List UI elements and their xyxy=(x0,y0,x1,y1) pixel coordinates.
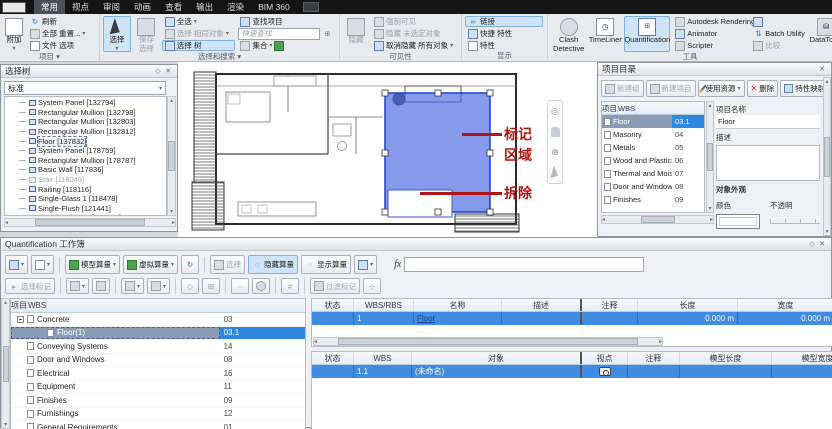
select-icon xyxy=(214,260,224,270)
viewpoint-cell xyxy=(582,365,628,378)
tree-branch xyxy=(19,141,26,142)
takeoff-header-cell[interactable]: 注释 xyxy=(582,299,638,311)
bucket-markup-button[interactable]: ◇ xyxy=(181,278,199,294)
item-name-link[interactable]: Floor xyxy=(414,312,502,325)
select-all-button[interactable]: 全选▾ xyxy=(162,16,236,27)
grid-markup-button[interactable]: ⊞ xyxy=(202,278,220,294)
count-markup-button[interactable]: # xyxy=(281,278,299,294)
group-label-display[interactable]: 显示 xyxy=(462,51,547,61)
append-icon xyxy=(5,18,23,36)
workbook-tree-row[interactable]: Furnishings 12 xyxy=(11,408,305,422)
workbook-tree-row[interactable]: Conveying Systems 14 xyxy=(11,340,305,354)
tree-branch xyxy=(19,131,26,132)
save-selection-button[interactable]: 保存 选择 xyxy=(133,16,160,52)
selection-tree-list: System Panel [132794] Rectangular Mullio… xyxy=(4,96,167,216)
markup-tool-button[interactable] xyxy=(92,278,110,294)
formula-input[interactable] xyxy=(404,257,644,272)
tree-branch xyxy=(19,208,26,209)
application-menu-button[interactable] xyxy=(2,2,26,13)
ribbon-tab[interactable]: 常用 xyxy=(34,0,65,14)
tree-vertical-scrollbar[interactable]: ▴ ▾ xyxy=(167,96,176,216)
takeoff-visibility-button[interactable]: ▾ xyxy=(5,255,28,274)
workbook-tree-header: 项目WBS xyxy=(11,299,305,313)
group-label-select-search[interactable]: 选择和搜索 ▾ xyxy=(100,52,339,61)
show-takeoff-button[interactable]: ◌显示算量 xyxy=(301,255,351,274)
workbook-tree-row[interactable]: Electrical 16 xyxy=(11,367,305,381)
quantification-workbook-panel: Quantification 工作簿 ◇ ✕ ▾ ▾ 模型算量▾ 虚拟算量▾ ↻… xyxy=(0,237,832,428)
tree-branch xyxy=(19,121,26,122)
description-label: 描述 xyxy=(716,132,820,143)
objects-header-cell[interactable]: 状态 xyxy=(312,352,354,364)
catalog-form: 项目名称 Floor 描述 对象外观 颜色 不透明 xyxy=(716,101,820,229)
ribbon-group-project: 附加▾ ↻刷新 全部 重置...▾ 文件 选项 项目 ▾ xyxy=(0,14,100,61)
objects-header-cell[interactable]: 视点 xyxy=(582,352,628,364)
select-all-icon xyxy=(165,17,175,27)
cube-icon xyxy=(29,100,36,106)
ribbon-tab[interactable]: 输出 xyxy=(189,0,220,14)
tree-branch xyxy=(19,179,26,180)
page-icon xyxy=(604,183,611,191)
select-same-icon xyxy=(165,29,175,39)
catalog-row[interactable]: Masonry 04 xyxy=(602,128,704,141)
page-icon xyxy=(27,369,34,377)
page-icon xyxy=(27,410,34,418)
markup-arrow-icon: ▸ xyxy=(9,281,19,291)
annotation-leader-demolish xyxy=(420,192,502,195)
tree-item[interactable]: Double-Glass 1 [122179] xyxy=(5,213,166,216)
tree-item[interactable]: Railing [118116] xyxy=(5,184,166,194)
new-group-icon xyxy=(605,84,615,94)
properties-icon xyxy=(468,41,478,51)
tree-item[interactable]: Rectangular Mullion [132803] xyxy=(5,117,166,127)
takeoff-header-cell[interactable]: 长度 xyxy=(638,299,738,311)
tree-branch xyxy=(19,160,26,161)
color-swatch[interactable] xyxy=(716,214,760,229)
cube-icon xyxy=(29,177,36,183)
select-arrow-icon[interactable] xyxy=(550,167,561,178)
quick-properties-icon xyxy=(468,29,478,39)
camera-icon[interactable] xyxy=(599,367,611,376)
compare-button[interactable]: 比较 xyxy=(750,40,806,51)
workbook-tree-rows: Concrete 03 Floor(1) 03.1 Conveying Syst… xyxy=(11,313,305,429)
filter-markup-icon xyxy=(314,281,324,291)
page-icon xyxy=(47,329,54,337)
scripter-icon xyxy=(675,41,685,51)
cube-icon xyxy=(29,196,36,202)
takeoff-items-header: 状态WBS/RBS名称描述注释长度宽度 xyxy=(312,299,832,312)
tree-branch xyxy=(19,102,26,103)
page-icon xyxy=(604,144,611,152)
annotation-demolish: 拆除 xyxy=(504,185,532,201)
area-markup-button[interactable]: ▾ xyxy=(121,278,144,294)
hide-button[interactable]: 隐藏 xyxy=(343,16,369,52)
objects-header-cell[interactable]: WBS xyxy=(354,352,412,364)
bucket-icon: ◇ xyxy=(185,281,195,291)
number-icon: # xyxy=(285,281,295,291)
tree-header-cell[interactable]: 项目 xyxy=(11,299,28,312)
refresh-icon: ↻ xyxy=(185,260,195,270)
expander-icon[interactable] xyxy=(17,316,24,323)
tree-branch xyxy=(19,112,26,113)
navigation-toolbar: ◎ ⊕ xyxy=(547,100,563,184)
links-button[interactable]: ∞链接 xyxy=(465,16,543,27)
pan-icon[interactable] xyxy=(550,126,561,137)
takeoff-header-cell[interactable]: 宽度 xyxy=(738,299,832,311)
tree-item[interactable]: Stair [118049] xyxy=(5,175,166,185)
length-cell: 0.000 m xyxy=(638,312,738,325)
tree-horizontal-scrollbar[interactable]: ◂ ▸ xyxy=(4,218,176,227)
ribbon-group-select-search: 选择▾ 保存 选择 全选▾ 选择 相同对象▾ 选择 树 查找项目 ⊕ 集合▾ 选… xyxy=(100,14,340,61)
catalog-header-cell[interactable]: 项目 xyxy=(602,102,618,114)
crosshair-icon: ⊹ xyxy=(367,281,377,291)
unhide-all-button[interactable]: 取消隐藏 所有对象▾ xyxy=(371,40,459,51)
page-icon xyxy=(604,196,611,204)
animator-button[interactable]: Animator xyxy=(672,28,748,39)
save-selection-icon xyxy=(137,18,155,36)
item-catalog-title: 项目目录 ✕ xyxy=(598,63,831,76)
selection-tree-icon xyxy=(165,41,175,51)
dock-icon[interactable]: ◇ xyxy=(807,239,817,249)
tree-item[interactable]: Single-Flush [121441] xyxy=(5,204,166,214)
tree-item[interactable]: Rectangular Mullion [178787] xyxy=(5,156,166,166)
model-width-cell xyxy=(772,365,832,378)
delete-icon: ✕ xyxy=(751,84,758,93)
show-takeoff-icon: ◌ xyxy=(305,260,315,270)
close-icon[interactable]: ✕ xyxy=(817,64,827,74)
page-icon xyxy=(604,131,611,139)
property-mapping-button[interactable]: 特性映射 xyxy=(780,80,829,97)
tree-item[interactable]: Floor [137832] xyxy=(5,136,166,146)
filter-markup-button[interactable]: 过滤标记 xyxy=(310,278,360,294)
datatools-button[interactable]: ⛁ DataTools xyxy=(808,16,832,52)
tree-item[interactable]: Basic Wall [117836] xyxy=(5,165,166,175)
description-cell xyxy=(502,312,582,325)
append-button[interactable]: 附加▾ xyxy=(3,16,25,52)
virtual-takeoff-button[interactable]: 虚拟算量▾ xyxy=(123,255,178,274)
rect-markup-icon xyxy=(151,281,161,291)
takeoff-header-cell[interactable]: 状态 xyxy=(312,299,354,311)
find-items-icon xyxy=(240,17,250,27)
formula-label: fx xyxy=(394,259,401,270)
scene-view[interactable] xyxy=(178,62,597,237)
wbs-cell: 1 xyxy=(354,312,414,325)
objects-header-cell[interactable]: 模型长度 xyxy=(680,352,772,364)
display-mode-icon xyxy=(358,260,368,270)
takeoff-header-cell[interactable]: 描述 xyxy=(502,299,582,311)
file-options-button[interactable]: 文件 选项 xyxy=(27,40,88,51)
annotation-mark-region-line2: 区域 xyxy=(504,147,532,163)
catalog-row[interactable]: Floor 03.1 xyxy=(602,115,704,128)
page-icon xyxy=(604,118,611,126)
ribbon-tab[interactable]: 查看 xyxy=(158,0,189,14)
ribbon-tab[interactable]: 视点 xyxy=(65,0,96,14)
close-icon[interactable]: ✕ xyxy=(817,239,827,249)
find-items-button[interactable]: 查找项目 xyxy=(237,16,337,27)
chevron-down-icon: ▾ xyxy=(159,85,162,92)
linear-markup-button[interactable]: ▾ xyxy=(66,278,89,294)
selection-tree-button[interactable]: 选择 树 xyxy=(162,40,236,51)
rect-markup-button[interactable]: ▾ xyxy=(147,278,170,294)
property-mapping-icon xyxy=(784,84,793,93)
refresh-button[interactable]: ↻刷新 xyxy=(27,16,88,27)
group-label-visibility[interactable]: 可见性 xyxy=(340,52,461,61)
use-resource-button[interactable]: 使用资源▾ xyxy=(698,80,745,97)
page-icon xyxy=(27,342,34,350)
tree-header-cell[interactable]: WBS xyxy=(28,299,47,312)
ribbon-group-tools: Clash Detective ◷ TimeLiner ⊞ Quantifica… xyxy=(548,14,832,61)
page-icon xyxy=(27,383,34,391)
select-button[interactable]: 选择▾ xyxy=(103,16,131,52)
selection-tree-panel: 选择树 ◇ ✕ 标准▾ System Panel [132794] Rectan… xyxy=(0,64,178,232)
page-icon xyxy=(604,170,611,178)
scroll-up-icon[interactable]: ▴ xyxy=(170,97,173,104)
line-markup-icon xyxy=(70,281,80,291)
page-icon xyxy=(27,315,34,323)
color-label: 颜色 xyxy=(716,200,760,211)
catalog-table: 项目WBS Floor 03.1 Masonry 04 Metals 05 Wo… xyxy=(601,101,705,213)
compare-icon xyxy=(753,41,763,51)
tree-item[interactable]: Rectangular Mullion [132812] xyxy=(5,127,166,137)
sets-button[interactable]: 集合▾ xyxy=(237,40,337,51)
workbook-tree-row[interactable]: Finishes 09 xyxy=(11,394,305,408)
appearance-label: 对象外观 xyxy=(716,184,820,195)
item-catalog-panel: 项目目录 ✕ 新建组 新建项目 使用资源▾ ✕删除 特性映射 项目WBS Flo… xyxy=(597,62,832,237)
catalog-row[interactable]: Wood and Plastics 06 xyxy=(602,154,704,167)
takeoff-object-row[interactable]: 1.1 (未命名) xyxy=(312,365,832,378)
cube-icon xyxy=(29,109,36,115)
sets-icon xyxy=(240,41,250,51)
group-label-project[interactable]: 项目 ▾ xyxy=(0,52,99,61)
require-button[interactable]: 强制可见 xyxy=(371,16,459,27)
tree-branch xyxy=(19,198,26,199)
batch-utility-button[interactable]: ⇅Batch Utility xyxy=(750,28,806,39)
select-same-button[interactable]: 选择 相同对象▾ xyxy=(162,28,236,39)
reset-all-icon xyxy=(30,29,40,39)
tree-mode-select[interactable]: 标准▾ xyxy=(4,81,166,95)
ribbon-tab[interactable]: 审阅 xyxy=(96,0,127,14)
datatools-icon: ⛁ xyxy=(817,18,832,36)
pin-icon[interactable]: ◇ xyxy=(153,66,163,76)
takeoff-item-row[interactable]: 1 Floor 0.000 m 0.000 m xyxy=(312,312,832,325)
catalog-header-cell[interactable]: WBS xyxy=(618,102,636,114)
quick-access-icon[interactable] xyxy=(303,2,319,12)
hide-icon xyxy=(347,18,365,36)
takeoff-objects-table: 状态WBS对象视点注释模型长度模型宽度模型厚度 1.1 (未命名) xyxy=(311,351,832,429)
analyze-button[interactable]: ⊹ xyxy=(363,278,381,294)
page-icon xyxy=(27,356,34,364)
tree-branch xyxy=(19,150,26,151)
group-label-tools[interactable]: 工具 xyxy=(548,52,832,61)
annotation-leader-mark xyxy=(462,133,502,136)
catalog-row[interactable]: Door and Windows 08 xyxy=(602,180,704,193)
model-takeoff-button[interactable]: 模型算量▾ xyxy=(65,255,120,274)
catalog-row[interactable]: Finishes 09 xyxy=(602,193,704,206)
grid-icon: ⊞ xyxy=(206,281,216,291)
title-bar: 常用视点审阅动画查看输出渲染BIM 360 xyxy=(0,0,832,14)
require-icon xyxy=(374,17,384,27)
panel-vertical-scrollbar[interactable]: ▴▾ xyxy=(823,77,831,236)
ribbon: 附加▾ ↻刷新 全部 重置...▾ 文件 选项 项目 ▾ 选择▾ 保存 选择 全… xyxy=(0,14,832,62)
new-group-button[interactable]: 新建组 xyxy=(601,80,644,97)
new-item-icon xyxy=(650,84,660,94)
page-icon xyxy=(604,157,611,165)
batch-utility-icon: ⇅ xyxy=(753,29,763,39)
comment-cell xyxy=(582,312,638,325)
page-icon xyxy=(27,423,34,429)
floor-plan xyxy=(178,62,597,237)
clash-detective-button[interactable]: Clash Detective xyxy=(551,16,586,52)
objects-header-cell[interactable]: 对象 xyxy=(412,352,582,364)
item-name-value[interactable]: Floor xyxy=(716,115,820,129)
timeliner-button[interactable]: ◷ TimeLiner xyxy=(588,16,622,52)
save-set-icon[interactable] xyxy=(274,41,284,51)
links-icon: ∞ xyxy=(468,17,478,27)
eraser-icon xyxy=(256,281,266,291)
page-icon xyxy=(27,396,34,404)
cube-icon xyxy=(29,167,36,173)
opacity-slider[interactable] xyxy=(770,219,820,224)
select-takeoff-button[interactable]: 选择 xyxy=(210,255,245,274)
ribbon-tab[interactable]: 渲染 xyxy=(220,0,251,14)
workbook-tree-row[interactable]: Equipment 11 xyxy=(11,381,305,395)
wbs-cell: 1.1 xyxy=(354,365,412,378)
point-markup-button[interactable]: ·· xyxy=(231,278,249,294)
takeoff-header-cell[interactable]: 名称 xyxy=(414,299,502,311)
model-length-cell xyxy=(680,365,772,378)
animator-icon xyxy=(675,29,685,39)
catalog-vertical-scrollbar[interactable]: ▴▾ xyxy=(706,101,714,213)
ribbon-group-visibility: 隐藏 强制可见 隐藏 未选定对象 取消隐藏 所有对象▾ 可见性 xyxy=(340,14,462,61)
item-name-label: 项目名称 xyxy=(716,104,820,115)
scroll-right-icon[interactable]: ▸ xyxy=(172,219,175,226)
hide-unselected-icon xyxy=(374,29,384,39)
cube-icon xyxy=(29,186,36,192)
unhide-all-icon xyxy=(374,41,384,51)
autodesk-rendering-button[interactable]: Autodesk Rendering xyxy=(672,16,748,27)
timeliner-icon: ◷ xyxy=(596,18,614,36)
catalog-row[interactable]: Thermal and Mois... 07 xyxy=(602,167,704,180)
catalog-header: 项目WBS xyxy=(602,102,704,115)
window-icon xyxy=(35,260,45,270)
select-markup-button[interactable]: ▸选择标记 xyxy=(5,278,55,294)
cube-icon xyxy=(29,157,36,163)
ribbon-tabs: 常用视点审阅动画查看输出渲染BIM 360 xyxy=(34,0,297,14)
hide-takeoff-icon: ◌ xyxy=(252,260,262,270)
search-icon[interactable]: ⊕ xyxy=(322,29,332,39)
rendering-icon xyxy=(675,17,685,27)
workbook-tree-scrollbar[interactable]: ▴▾ xyxy=(1,298,10,429)
properties-button[interactable]: 特性 xyxy=(465,40,543,51)
tree-item[interactable]: Rectangular Mullion [132798] xyxy=(5,108,166,118)
virtual-takeoff-icon xyxy=(127,260,137,270)
object-cell: (未命名) xyxy=(412,365,582,378)
description-field[interactable] xyxy=(716,145,820,181)
catalog-row[interactable]: Metals 05 xyxy=(602,141,704,154)
polyline-markup-icon xyxy=(96,281,106,291)
takeoff-table-horizontal-scrollbar[interactable]: ◂▸ xyxy=(313,337,663,346)
cube-icon xyxy=(29,148,36,154)
quick-properties-button[interactable]: 快捷 特性 xyxy=(465,28,543,39)
workbook-tree-row[interactable]: Floor(1) 03.1 xyxy=(11,327,305,341)
objects-header-cell[interactable]: 模型宽度 xyxy=(772,352,832,364)
scroll-left-icon[interactable]: ◂ xyxy=(5,219,8,226)
status-cell xyxy=(312,312,354,325)
status-cell xyxy=(312,365,354,378)
workbook-tree-row[interactable]: Door and Windows 08 xyxy=(11,354,305,368)
ribbon-group-display: ∞链接 快捷 特性 特性 显示 xyxy=(462,14,548,61)
quantification-icon: ⊞ xyxy=(638,18,656,36)
view-options-button[interactable]: ▾ xyxy=(31,255,54,274)
tree-branch xyxy=(19,189,26,190)
cube-icon xyxy=(29,138,36,144)
new-item-button[interactable]: 新建项目 xyxy=(646,80,696,97)
workbook-title: Quantification 工作簿 ◇ ✕ xyxy=(1,238,831,251)
refresh-icon: ↻ xyxy=(30,17,40,27)
takeoff-objects-header: 状态WBS对象视点注释模型长度模型宽度模型厚度 xyxy=(312,352,832,365)
ribbon-tab[interactable]: 动画 xyxy=(127,0,158,14)
objects-header-cell[interactable]: 注释 xyxy=(628,352,680,364)
cube-icon xyxy=(29,215,36,216)
hide-unselected-button[interactable]: 隐藏 未选定对象 xyxy=(371,28,459,39)
takeoff-display-button[interactable]: ▾ xyxy=(354,255,377,274)
ribbon-tab[interactable]: BIM 360 xyxy=(251,0,297,14)
scripter-button[interactable]: Scripter xyxy=(672,40,748,51)
tree-item[interactable]: System Panel [178759] xyxy=(5,146,166,156)
cube-icon xyxy=(29,129,36,135)
close-icon[interactable]: ✕ xyxy=(163,66,173,76)
comment-cell xyxy=(628,365,680,378)
selection-tree-title: 选择树 ◇ ✕ xyxy=(1,65,177,78)
catalog-horizontal-scrollbar[interactable]: ◂▸ xyxy=(601,215,714,224)
tree-branch xyxy=(19,169,26,170)
workbook-item-tree: 项目WBS Concrete 03 Floor(1) 03.1 Conveyin… xyxy=(10,298,306,429)
quantification-button[interactable]: ⊞ Quantification xyxy=(624,16,670,52)
tree-item[interactable]: Single-Glass 1 [118478] xyxy=(5,194,166,204)
annotation-mark-region-line1: 标记 xyxy=(504,126,532,142)
eye-icon xyxy=(9,260,19,270)
select-cursor-icon xyxy=(108,18,126,36)
use-resource-icon xyxy=(702,84,704,93)
catalog-rows: Floor 03.1 Masonry 04 Metals 05 Wood and… xyxy=(602,115,704,206)
update-takeoff-button[interactable]: ↻ xyxy=(181,255,199,274)
file-options-icon xyxy=(30,41,40,51)
tree-item[interactable]: System Panel [132794] xyxy=(5,98,166,108)
model-takeoff-icon xyxy=(69,260,79,270)
opacity-label: 不透明 xyxy=(770,200,820,211)
cube-icon xyxy=(29,119,36,125)
reset-all-button[interactable]: 全部 重置...▾ xyxy=(27,28,88,39)
zoom-icon[interactable]: ⊕ xyxy=(550,147,561,158)
clash-detective-icon xyxy=(560,18,578,36)
image-tool-button[interactable] xyxy=(750,16,806,27)
width-cell: 0.000 m xyxy=(738,312,832,325)
erase-markup-button[interactable] xyxy=(252,278,270,294)
workbook-tree-row[interactable]: Concrete 03 xyxy=(11,313,305,327)
delete-button[interactable]: ✕删除 xyxy=(747,80,779,97)
image-tool-icon xyxy=(753,17,763,27)
area-markup-icon xyxy=(125,281,135,291)
quick-find-input[interactable] xyxy=(238,28,320,40)
takeoff-header-cell[interactable]: WBS/RBS xyxy=(354,299,414,311)
hide-takeoff-button[interactable]: ◌隐藏算量 xyxy=(248,255,298,274)
orbit-icon[interactable]: ◎ xyxy=(550,106,561,117)
points-icon: ·· xyxy=(235,281,245,291)
scroll-down-icon[interactable]: ▾ xyxy=(170,208,173,215)
cube-icon xyxy=(29,205,36,211)
